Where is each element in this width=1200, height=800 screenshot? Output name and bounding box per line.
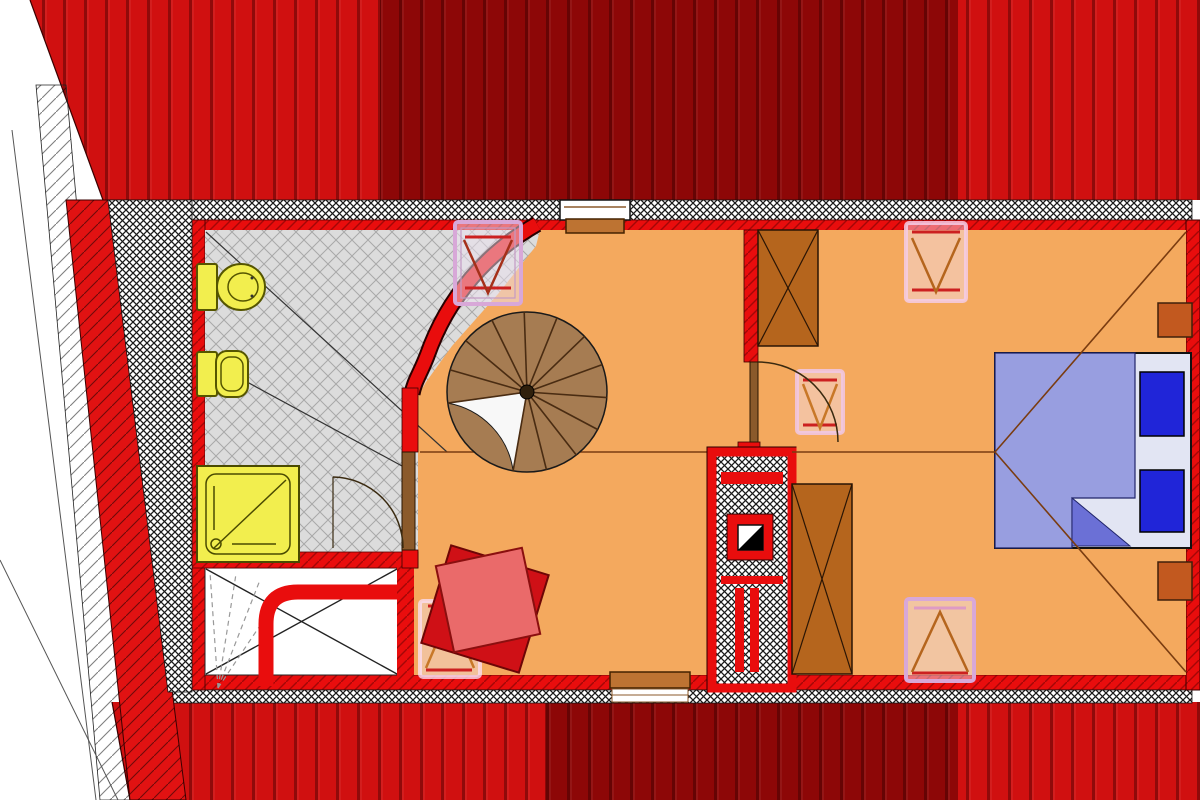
wardrobe-top [758, 230, 818, 346]
roof-window-bedroom-bottom [906, 599, 974, 681]
shower-tray [197, 466, 299, 562]
roof-bottom [112, 702, 1200, 800]
roof-top [30, 0, 1200, 200]
spiral-staircase [447, 312, 607, 472]
pillow-top [1140, 372, 1184, 436]
window-top [560, 200, 630, 233]
toilet [197, 264, 265, 310]
stair-center-post [520, 385, 534, 399]
stair-void-room [205, 568, 398, 688]
roof-window-bedroom-top [906, 223, 966, 301]
bidet [197, 351, 248, 397]
chimney-shaft [707, 447, 796, 692]
pillow-bottom [1140, 470, 1184, 532]
wardrobe-center [792, 484, 852, 674]
nightstand-bottom [1158, 562, 1192, 600]
window-bottom [610, 672, 690, 702]
nightstand-top [1158, 303, 1192, 337]
roof-window-bathroom [455, 222, 521, 304]
floor-plan-canvas [0, 0, 1200, 800]
wall-hatch-band-top [100, 200, 1192, 220]
floor-plan-drawing [0, 0, 1200, 800]
double-bed [995, 353, 1191, 548]
